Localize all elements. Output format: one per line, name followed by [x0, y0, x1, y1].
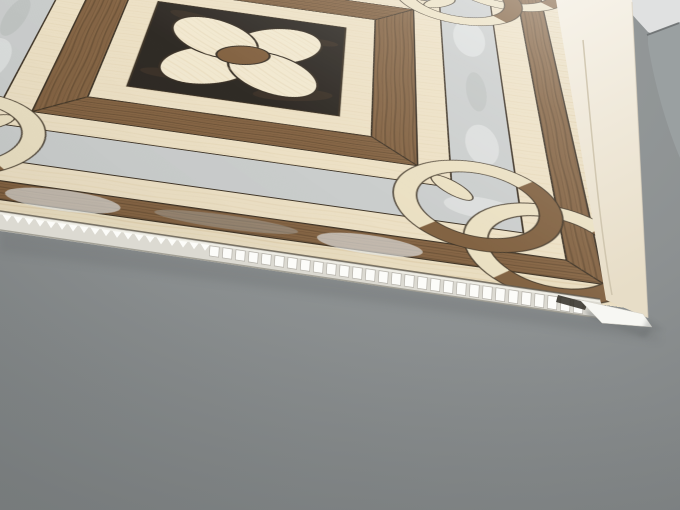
core-cell — [352, 267, 362, 280]
core-cell — [378, 271, 388, 284]
core-cell — [443, 280, 453, 294]
core-cell — [469, 284, 479, 298]
core-cell — [326, 263, 336, 275]
core-cell — [508, 290, 518, 304]
core-cell — [456, 282, 466, 296]
core-cell — [300, 259, 310, 271]
panel-contact-shadow — [0, 230, 660, 341]
core-cell — [404, 274, 414, 287]
photo-pvc-ceiling-panel — [0, 0, 680, 510]
core-cell — [547, 295, 557, 309]
core-cell — [482, 286, 492, 300]
core-cell — [222, 248, 232, 260]
core-cell — [261, 253, 271, 265]
core-cell — [391, 273, 401, 286]
core-cell — [209, 246, 219, 257]
core-bottom-line — [0, 230, 604, 319]
core-cell — [287, 257, 297, 269]
panel-edge-foreground — [0, 0, 680, 510]
core-cell — [495, 288, 505, 302]
core-cell — [339, 265, 349, 278]
core-cell — [313, 261, 323, 273]
core-cell — [534, 294, 544, 308]
core-cell — [365, 269, 375, 282]
core-cell — [430, 278, 440, 291]
core-cell — [248, 252, 258, 264]
core-cell — [521, 292, 531, 306]
core-cell — [274, 255, 284, 267]
core-cell — [417, 276, 427, 289]
core-cell — [235, 250, 245, 262]
